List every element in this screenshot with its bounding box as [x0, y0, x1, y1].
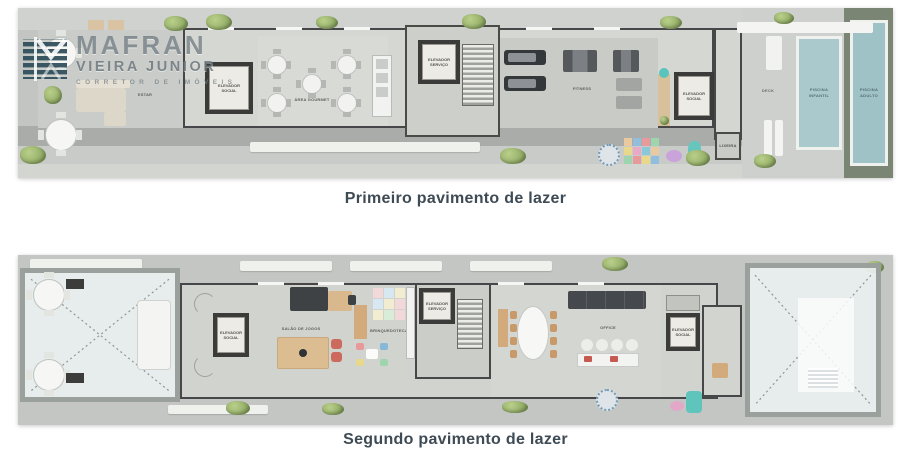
gym-mat [616, 78, 642, 91]
kids-table [366, 349, 378, 359]
trash-room: LIXEIRA [715, 132, 741, 160]
elevator-label: ELEVADOR SOCIAL [670, 317, 696, 347]
round-table [34, 360, 64, 390]
gym-machine [563, 50, 597, 72]
plant [660, 116, 669, 125]
elevator-label: ELEVADOR SOCIAL [678, 76, 710, 116]
plant [660, 16, 682, 29]
elevator-label: ELEVADOR SERVIÇO [422, 44, 456, 80]
room-label-area-gourmet: ÁREA GOURMET [288, 97, 336, 102]
gourmet-table [268, 56, 286, 74]
corridor [714, 28, 742, 140]
brand-name: MAFRAN [76, 32, 236, 58]
glass-roof-right [745, 263, 881, 417]
plant [322, 403, 344, 415]
gourmet-table [338, 94, 356, 112]
wc-room [666, 295, 700, 311]
room-label-office: OFFICE [588, 325, 628, 330]
kids-chair [380, 359, 388, 366]
plant [206, 14, 232, 30]
plant [226, 401, 250, 415]
elevator-label: ELEVADOR SERVIÇO [423, 292, 451, 320]
gourmet-table [268, 94, 286, 112]
deck-bench [766, 36, 782, 70]
plant [686, 150, 710, 166]
kitchen-counter [372, 55, 392, 117]
pergola-bar [737, 22, 873, 33]
bench-planter [250, 142, 480, 152]
treadmill [504, 76, 546, 91]
window [276, 27, 302, 30]
caption-second-floor: Segundo pavimento de lazer [0, 431, 911, 449]
side-room [702, 305, 742, 397]
elevator-service: ELEVADOR SERVIÇO [419, 288, 455, 324]
kids-chair [356, 343, 364, 350]
plant [602, 257, 628, 271]
wood-lounger [108, 20, 124, 30]
desk-chair [348, 295, 356, 305]
lower-edge-band [18, 164, 742, 178]
caption-first-floor: Primeiro pavimento de lazer [0, 190, 911, 208]
toy-shelf [354, 305, 367, 339]
counter [406, 287, 415, 359]
bean-bag [670, 401, 684, 411]
stairs [457, 299, 483, 349]
pool-steps [808, 368, 838, 388]
listing-floorplan-image: { "logo": { "brand": "MAFRAN", "brand2":… [0, 0, 911, 464]
wood-lounger [88, 20, 104, 30]
pool-label-infantil: PISCINA INFANTIL [804, 87, 834, 98]
armchair [104, 112, 126, 126]
bar-stools [581, 339, 593, 351]
planter [240, 261, 332, 271]
glass-partition-arc [194, 355, 216, 377]
play-slide [686, 391, 702, 413]
planter [350, 261, 442, 271]
plant [44, 86, 62, 104]
kids-chair [356, 359, 364, 366]
counter-accessory [584, 356, 592, 362]
gourmet-table [338, 56, 356, 74]
meeting-chairs [510, 311, 517, 319]
plant [316, 16, 338, 29]
play-mats [624, 138, 632, 146]
mosaic-table [598, 144, 620, 166]
office-sofa [568, 291, 646, 309]
plant [774, 12, 794, 24]
window [526, 27, 552, 30]
round-table [34, 280, 64, 310]
appliance [376, 73, 388, 83]
sun-lounger [764, 120, 772, 156]
elevator-service: ELEVADOR SERVIÇO [418, 40, 460, 84]
pool-label-adulto: PISCINA ADULTO [855, 87, 883, 98]
floorplan-second-leisure-floor: ELEVADOR SOCIAL SALÃO DE JOGOS BRINQUEDO… [18, 255, 893, 425]
counter-accessory [610, 356, 618, 362]
room-label-lixeira: LIXEIRA [719, 143, 736, 148]
brand-logo: MAFRAN VIEIRA JUNIOR CORRETOR DE IMÓVEIS [22, 32, 236, 86]
room-label-salao-de-jogos: SALÃO DE JOGOS [279, 326, 323, 331]
credenza [498, 309, 508, 347]
mosaic-table [596, 389, 618, 411]
soft-play-mats [373, 288, 383, 298]
room-label-estar: ESTAR [130, 92, 160, 97]
sun-lounger [775, 120, 783, 156]
elevator-social-right: ELEVADOR SOCIAL [674, 72, 714, 120]
sofa [76, 88, 126, 112]
kids-chair [380, 343, 388, 350]
media-shelf [290, 287, 328, 311]
planter [168, 405, 268, 414]
plant [500, 148, 526, 164]
brand-tagline: CORRETOR DE IMÓVEIS [76, 79, 236, 86]
bean-bag [666, 150, 682, 162]
plant [164, 16, 188, 31]
planter [470, 261, 552, 271]
exercise-ball [659, 68, 669, 78]
appliance [376, 87, 388, 97]
brand-subname: VIEIRA JUNIOR [76, 58, 236, 77]
plant [462, 14, 486, 29]
round-table [46, 120, 76, 150]
window [344, 27, 370, 30]
dark-bench [66, 279, 84, 289]
stairs [462, 44, 494, 106]
gym-machine [613, 50, 639, 72]
pool-kids: PISCINA INFANTIL [796, 36, 842, 150]
wood-bench [712, 363, 728, 378]
pouf [331, 352, 342, 362]
oval-meeting-table [518, 307, 548, 359]
elevator-social-left: ELEVADOR SOCIAL [213, 313, 249, 357]
long-table [138, 301, 170, 369]
appliance [376, 59, 388, 69]
gym-mat [616, 96, 642, 109]
glass-partition-arc [194, 293, 216, 315]
table-game-piece [299, 349, 307, 357]
treadmill [504, 50, 546, 65]
mafran-logo-icon [22, 35, 68, 83]
pool-adult: PISCINA ADULTO [850, 20, 888, 166]
gourmet-table [303, 75, 321, 93]
plant [502, 401, 528, 413]
area-label-deck: DECK [748, 88, 788, 93]
window [258, 282, 284, 285]
plant [754, 154, 776, 168]
elevator-social-right: ELEVADOR SOCIAL [666, 313, 700, 351]
pouf [331, 339, 342, 349]
room-label-fitness: FITNESS [567, 86, 597, 91]
window [318, 282, 344, 285]
plant [20, 146, 46, 164]
window [594, 27, 620, 30]
dark-bench [66, 373, 84, 383]
elevator-label: ELEVADOR SOCIAL [217, 317, 245, 353]
